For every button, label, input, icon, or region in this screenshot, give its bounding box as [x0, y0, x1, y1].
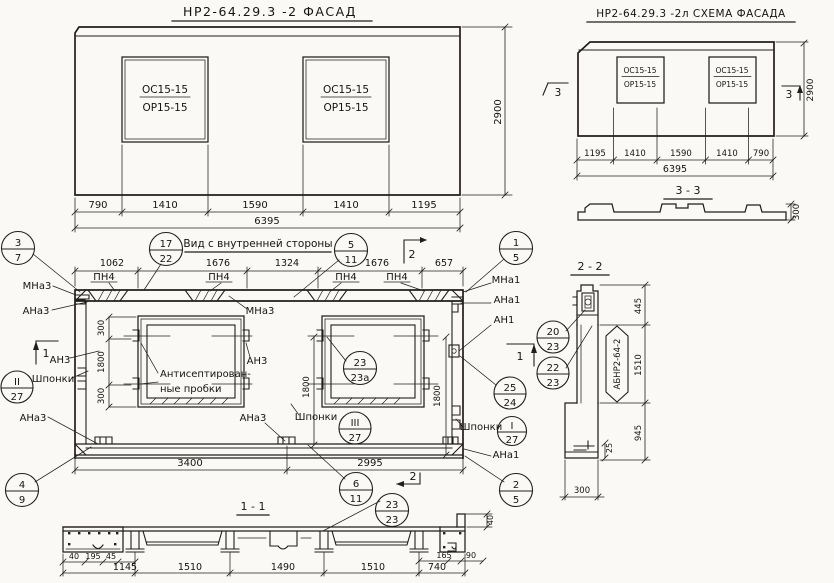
dim: 1510: [634, 354, 644, 376]
dim: 1410: [333, 200, 358, 211]
svg-text:6: 6: [353, 479, 359, 490]
dim: 3400: [177, 458, 202, 469]
svg-text:2: 2: [513, 480, 519, 491]
svg-text:7: 7: [15, 253, 21, 264]
dim: 445: [634, 298, 644, 314]
label-mna1: МНа1: [492, 275, 521, 286]
dim: 40: [69, 552, 79, 561]
svg-text:25: 25: [504, 383, 517, 394]
svg-text:22: 22: [160, 254, 173, 265]
window-mark-bottom: ОР15-15: [716, 80, 748, 89]
label-plugs-line2: ные пробки: [160, 384, 221, 395]
label-shponki: Шпонки: [460, 422, 502, 433]
svg-text:11: 11: [350, 494, 363, 505]
dim: 300: [97, 388, 107, 404]
label-ana1: АНа1: [494, 295, 521, 306]
label-an3: АН3: [50, 355, 71, 366]
svg-text:23: 23: [547, 378, 560, 389]
dim: 165: [436, 551, 451, 560]
svg-text:23: 23: [354, 358, 367, 369]
section-title: 1 - 1: [241, 500, 266, 513]
svg-text:27: 27: [11, 392, 24, 403]
drawing-canvas: НР2-64.29.3 -2 ФАСАД ОС15-15 ОР15-15 ОС1…: [0, 0, 834, 583]
window-mark-top: ОС15-15: [624, 66, 657, 75]
dim-total: 6395: [254, 216, 279, 227]
label-ana3: АНа3: [240, 413, 267, 424]
dim: 1410: [624, 149, 646, 159]
label-shponki: Шпонки: [295, 412, 337, 423]
window-mark-bottom: ОР15-15: [624, 80, 656, 89]
dim: 2995: [357, 458, 382, 469]
dim: 40: [486, 515, 495, 525]
dim: 1800: [97, 351, 107, 373]
dim: 1510: [178, 562, 202, 573]
dim: 1490: [271, 562, 295, 573]
dim: 1590: [242, 200, 267, 211]
dim: 1195: [411, 200, 436, 211]
facade-title: НР2-64.29.3 -2 ФАСАД: [183, 4, 357, 19]
section-marker-label: 3: [786, 89, 793, 101]
dim: 1195: [584, 149, 606, 159]
dim: 1510: [361, 562, 385, 573]
dim-total: 6395: [663, 164, 687, 175]
window-mark-top: ОС15-15: [716, 66, 749, 75]
svg-text:22: 22: [547, 363, 560, 374]
label-pn4: ПН4: [335, 272, 356, 283]
dim: 1590: [670, 149, 692, 159]
dim: 1410: [716, 149, 738, 159]
dim: 1062: [100, 258, 124, 269]
svg-text:27: 27: [506, 435, 519, 446]
window-mark-top: ОС15-15: [323, 84, 369, 96]
svg-text:3: 3: [15, 238, 21, 249]
label-pn4: ПН4: [386, 272, 407, 283]
label-ana3: АНа3: [23, 306, 50, 317]
section-marker-label: 2: [410, 470, 417, 483]
dim: 1324: [275, 258, 299, 269]
svg-text:II: II: [14, 377, 20, 388]
svg-text:23: 23: [386, 500, 399, 511]
label-mna3: МНа3: [23, 281, 52, 292]
dim: 300: [792, 204, 802, 220]
svg-text:23: 23: [547, 342, 560, 353]
dim-height: 2900: [493, 99, 504, 124]
dim: 1676: [365, 258, 389, 269]
svg-text:23а: 23а: [351, 373, 370, 384]
dim: 300: [97, 320, 107, 336]
window-mark-top: ОС15-15: [142, 84, 188, 96]
svg-text:1: 1: [513, 238, 519, 249]
window-mark-bottom: ОР15-15: [142, 102, 187, 114]
section-title: 2 - 2: [578, 260, 603, 273]
label-pn4: ПН4: [208, 272, 229, 283]
svg-text:20: 20: [547, 327, 560, 338]
label-shponki: Шпонки: [32, 374, 74, 385]
window-mark-bottom: ОР15-15: [323, 102, 368, 114]
svg-text:17: 17: [160, 239, 173, 250]
svg-text:27: 27: [349, 433, 362, 444]
inner-view-title: Вид с внутренней стороны: [183, 238, 332, 250]
label-pn4: ПН4: [93, 272, 114, 283]
dim: 90: [466, 551, 476, 560]
dim: 790: [753, 149, 769, 159]
svg-text:I: I: [511, 421, 514, 432]
dim: 657: [435, 258, 453, 269]
svg-text:5: 5: [513, 253, 519, 264]
dim: 740: [428, 562, 446, 573]
section-marker-label: 1: [43, 347, 50, 360]
dim: 300: [574, 486, 590, 496]
svg-text:5: 5: [348, 240, 354, 251]
label-an3: АН3: [247, 356, 268, 367]
dim: 1676: [206, 258, 230, 269]
svg-text:5: 5: [513, 495, 519, 506]
dim: 45: [106, 552, 116, 561]
svg-text:III: III: [351, 418, 360, 429]
svg-text:11: 11: [345, 255, 358, 266]
dim: 1800: [302, 376, 312, 398]
panel-mark-text: АБНР2-64-2: [613, 339, 623, 390]
schema-title: НР2-64.29.3 -2л СХЕМА ФАСАДА: [596, 8, 786, 20]
section-title: 3 - 3: [676, 184, 701, 197]
dim: 25: [605, 443, 614, 453]
label-ana3: АНа3: [20, 413, 47, 424]
section-marker-label: 1: [517, 350, 524, 363]
svg-text:24: 24: [504, 398, 517, 409]
label-mna3: МНа3: [246, 306, 275, 317]
dim: 1145: [113, 562, 137, 573]
label-plugs-line1: Антисептирован-: [160, 369, 251, 380]
svg-text:23: 23: [386, 515, 399, 526]
svg-text:4: 4: [19, 480, 25, 491]
dim-height: 2900: [806, 78, 816, 101]
section-marker-label: 2: [409, 248, 416, 261]
blueprint-page: НР2-64.29.3 -2 ФАСАД ОС15-15 ОР15-15 ОС1…: [0, 0, 834, 583]
dim: 790: [88, 200, 107, 211]
label-an1: АН1: [494, 315, 515, 326]
dim: 195: [85, 552, 100, 561]
label-ana1: АНа1: [493, 450, 520, 461]
dim: 1800: [433, 385, 443, 407]
svg-text:9: 9: [19, 495, 25, 506]
dim: 945: [634, 425, 644, 441]
section-marker-label: 3: [555, 87, 562, 99]
dim: 1410: [152, 200, 177, 211]
